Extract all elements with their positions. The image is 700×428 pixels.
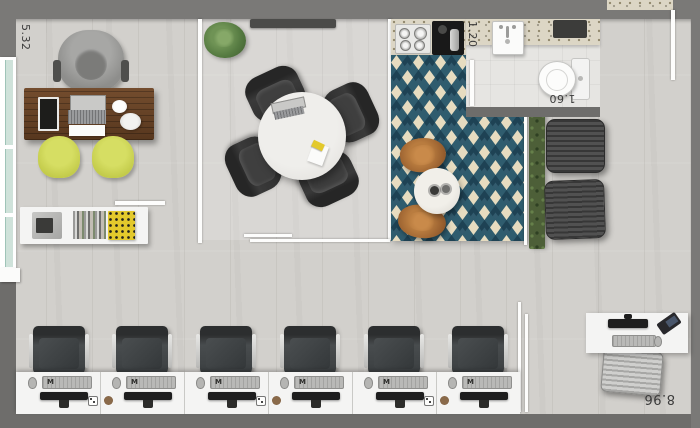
task-chair xyxy=(116,326,168,374)
espresso-cup xyxy=(430,186,439,195)
monitor xyxy=(292,392,340,400)
cooktop xyxy=(395,24,431,54)
mouse xyxy=(364,377,373,389)
desk-phone xyxy=(656,312,681,335)
workstation-end-wall xyxy=(525,314,528,412)
chair-armrest xyxy=(121,60,129,82)
burner xyxy=(414,40,425,51)
espresso-cup xyxy=(442,185,450,193)
mouse xyxy=(112,377,121,389)
task-chair xyxy=(33,326,85,374)
desk-accessory xyxy=(104,396,113,405)
mouse xyxy=(280,377,289,389)
office-sideboard xyxy=(20,207,148,244)
dimension-label-office: 5.32 xyxy=(20,24,31,51)
executive-desk xyxy=(24,88,154,140)
window-mullion xyxy=(0,213,16,217)
workstation: M xyxy=(184,372,268,414)
keyboard: M xyxy=(42,376,92,389)
floor-plan: M M M M xyxy=(0,0,700,428)
window-mullion xyxy=(0,145,16,149)
right-partition xyxy=(671,10,675,80)
bottle xyxy=(450,29,459,51)
desk-photo-frame xyxy=(38,97,59,131)
right-wall xyxy=(691,0,700,428)
bottom-wall xyxy=(0,414,700,428)
hedge-planter xyxy=(529,112,545,249)
decor-yellow-box xyxy=(108,211,135,240)
dimension-label-plan-width: 8.96 xyxy=(644,392,675,405)
sink-drain xyxy=(505,39,510,44)
left-wall-upper xyxy=(0,19,16,57)
top-window-sill xyxy=(607,0,673,10)
webcam xyxy=(624,314,632,319)
manager-chair xyxy=(600,347,664,396)
task-chair xyxy=(452,326,504,374)
potted-plant xyxy=(204,22,246,58)
desk-accessory xyxy=(424,396,434,406)
mouse xyxy=(448,377,457,389)
monitor-stand xyxy=(479,400,489,408)
task-chair xyxy=(200,326,252,374)
desk-papers xyxy=(69,125,105,136)
manager-desk xyxy=(586,313,688,353)
book-stack xyxy=(73,211,106,239)
toilet-seat xyxy=(546,69,568,91)
task-chair xyxy=(368,326,420,374)
bathroom-sink xyxy=(492,21,524,55)
bathroom-shelf xyxy=(553,20,587,38)
phone-screen xyxy=(665,315,678,327)
sliding-door-leaf xyxy=(244,234,292,237)
desk-accessory xyxy=(272,396,281,405)
lounge-coffee-table xyxy=(414,168,460,214)
workstation: M xyxy=(100,372,184,414)
monitor-stand xyxy=(143,400,153,408)
lounge-pouf xyxy=(544,179,606,240)
keyboard: M xyxy=(210,376,260,389)
monitor xyxy=(208,392,256,400)
monitor xyxy=(376,392,424,400)
guest-chair-yellow xyxy=(92,136,134,178)
faucet-handle xyxy=(512,25,516,29)
wall-tv xyxy=(250,19,336,28)
mouse xyxy=(28,377,37,389)
chair-armrest xyxy=(53,60,61,82)
monitor xyxy=(124,392,172,400)
desk-accessory xyxy=(88,396,98,406)
workstation: M xyxy=(268,372,352,414)
burner xyxy=(414,27,427,40)
kitchen-counter xyxy=(391,19,466,57)
top-wall xyxy=(0,0,700,19)
bathroom-bottom-wall xyxy=(466,107,600,117)
office-partition-segment xyxy=(115,201,165,205)
window-sill-end xyxy=(0,268,20,282)
monitor xyxy=(460,392,508,400)
left-window-glass xyxy=(4,59,14,275)
kettle xyxy=(438,25,447,34)
lounge-pouf xyxy=(546,119,605,173)
mouse xyxy=(196,377,205,389)
guest-chair-yellow xyxy=(38,136,80,178)
burner xyxy=(400,40,411,51)
keyboard: M xyxy=(462,376,512,389)
monitor-stand xyxy=(395,400,405,408)
meeting-table xyxy=(258,92,346,180)
monitor-stand xyxy=(59,400,69,408)
task-chair xyxy=(284,326,336,374)
faucet xyxy=(506,26,509,38)
desk-accessory xyxy=(256,396,266,406)
workstation: M xyxy=(436,372,520,414)
keyboard xyxy=(612,335,656,347)
coffee-cup xyxy=(112,100,127,113)
monitor-stand xyxy=(311,400,321,408)
mouse xyxy=(654,336,662,347)
workstation-desk-band: M M M M xyxy=(16,372,520,414)
lounge-partition xyxy=(524,108,527,245)
executive-chair xyxy=(58,30,124,92)
printer xyxy=(32,212,62,239)
left-window-frame xyxy=(0,57,16,275)
workstation: M xyxy=(16,372,100,414)
monitor xyxy=(608,319,648,328)
faucet-handle xyxy=(499,25,503,29)
bathroom-door xyxy=(470,60,474,106)
meeting-room-left-wall xyxy=(198,19,202,243)
meeting-laptop xyxy=(271,97,306,119)
executive-chair-headrest xyxy=(75,48,107,80)
sliding-door-track xyxy=(250,239,390,242)
workstation: M xyxy=(352,372,436,414)
printer-tray xyxy=(36,218,53,233)
desk-accessory xyxy=(440,396,449,405)
flush-button xyxy=(578,76,583,81)
coffee-station xyxy=(432,21,464,55)
dimension-label-bathroom-width: 1.20 xyxy=(467,21,478,48)
left-wall-lower xyxy=(0,275,16,414)
monitor-stand xyxy=(227,400,237,408)
laptop-keyboard xyxy=(68,110,106,124)
monitor xyxy=(40,392,88,400)
burner xyxy=(399,28,410,39)
keyboard: M xyxy=(378,376,428,389)
dimension-label-bathroom-length: 1.60 xyxy=(549,93,576,104)
keyboard: M xyxy=(294,376,344,389)
keyboard: M xyxy=(126,376,176,389)
desk-bowl xyxy=(120,113,141,130)
